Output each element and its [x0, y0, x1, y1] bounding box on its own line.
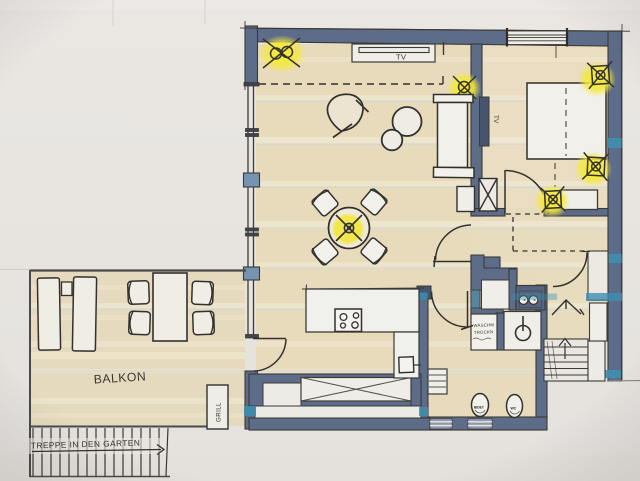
svg-text:GRILL: GRILL [216, 402, 223, 422]
svg-text:TROCKN: TROCKN [474, 329, 494, 335]
svg-text:TV: TV [492, 115, 499, 124]
svg-text:BIDET: BIDET [474, 406, 484, 410]
svg-text:WASCHM: WASCHM [473, 322, 494, 328]
svg-text:TV: TV [396, 53, 406, 62]
svg-text:WC: WC [511, 407, 517, 411]
